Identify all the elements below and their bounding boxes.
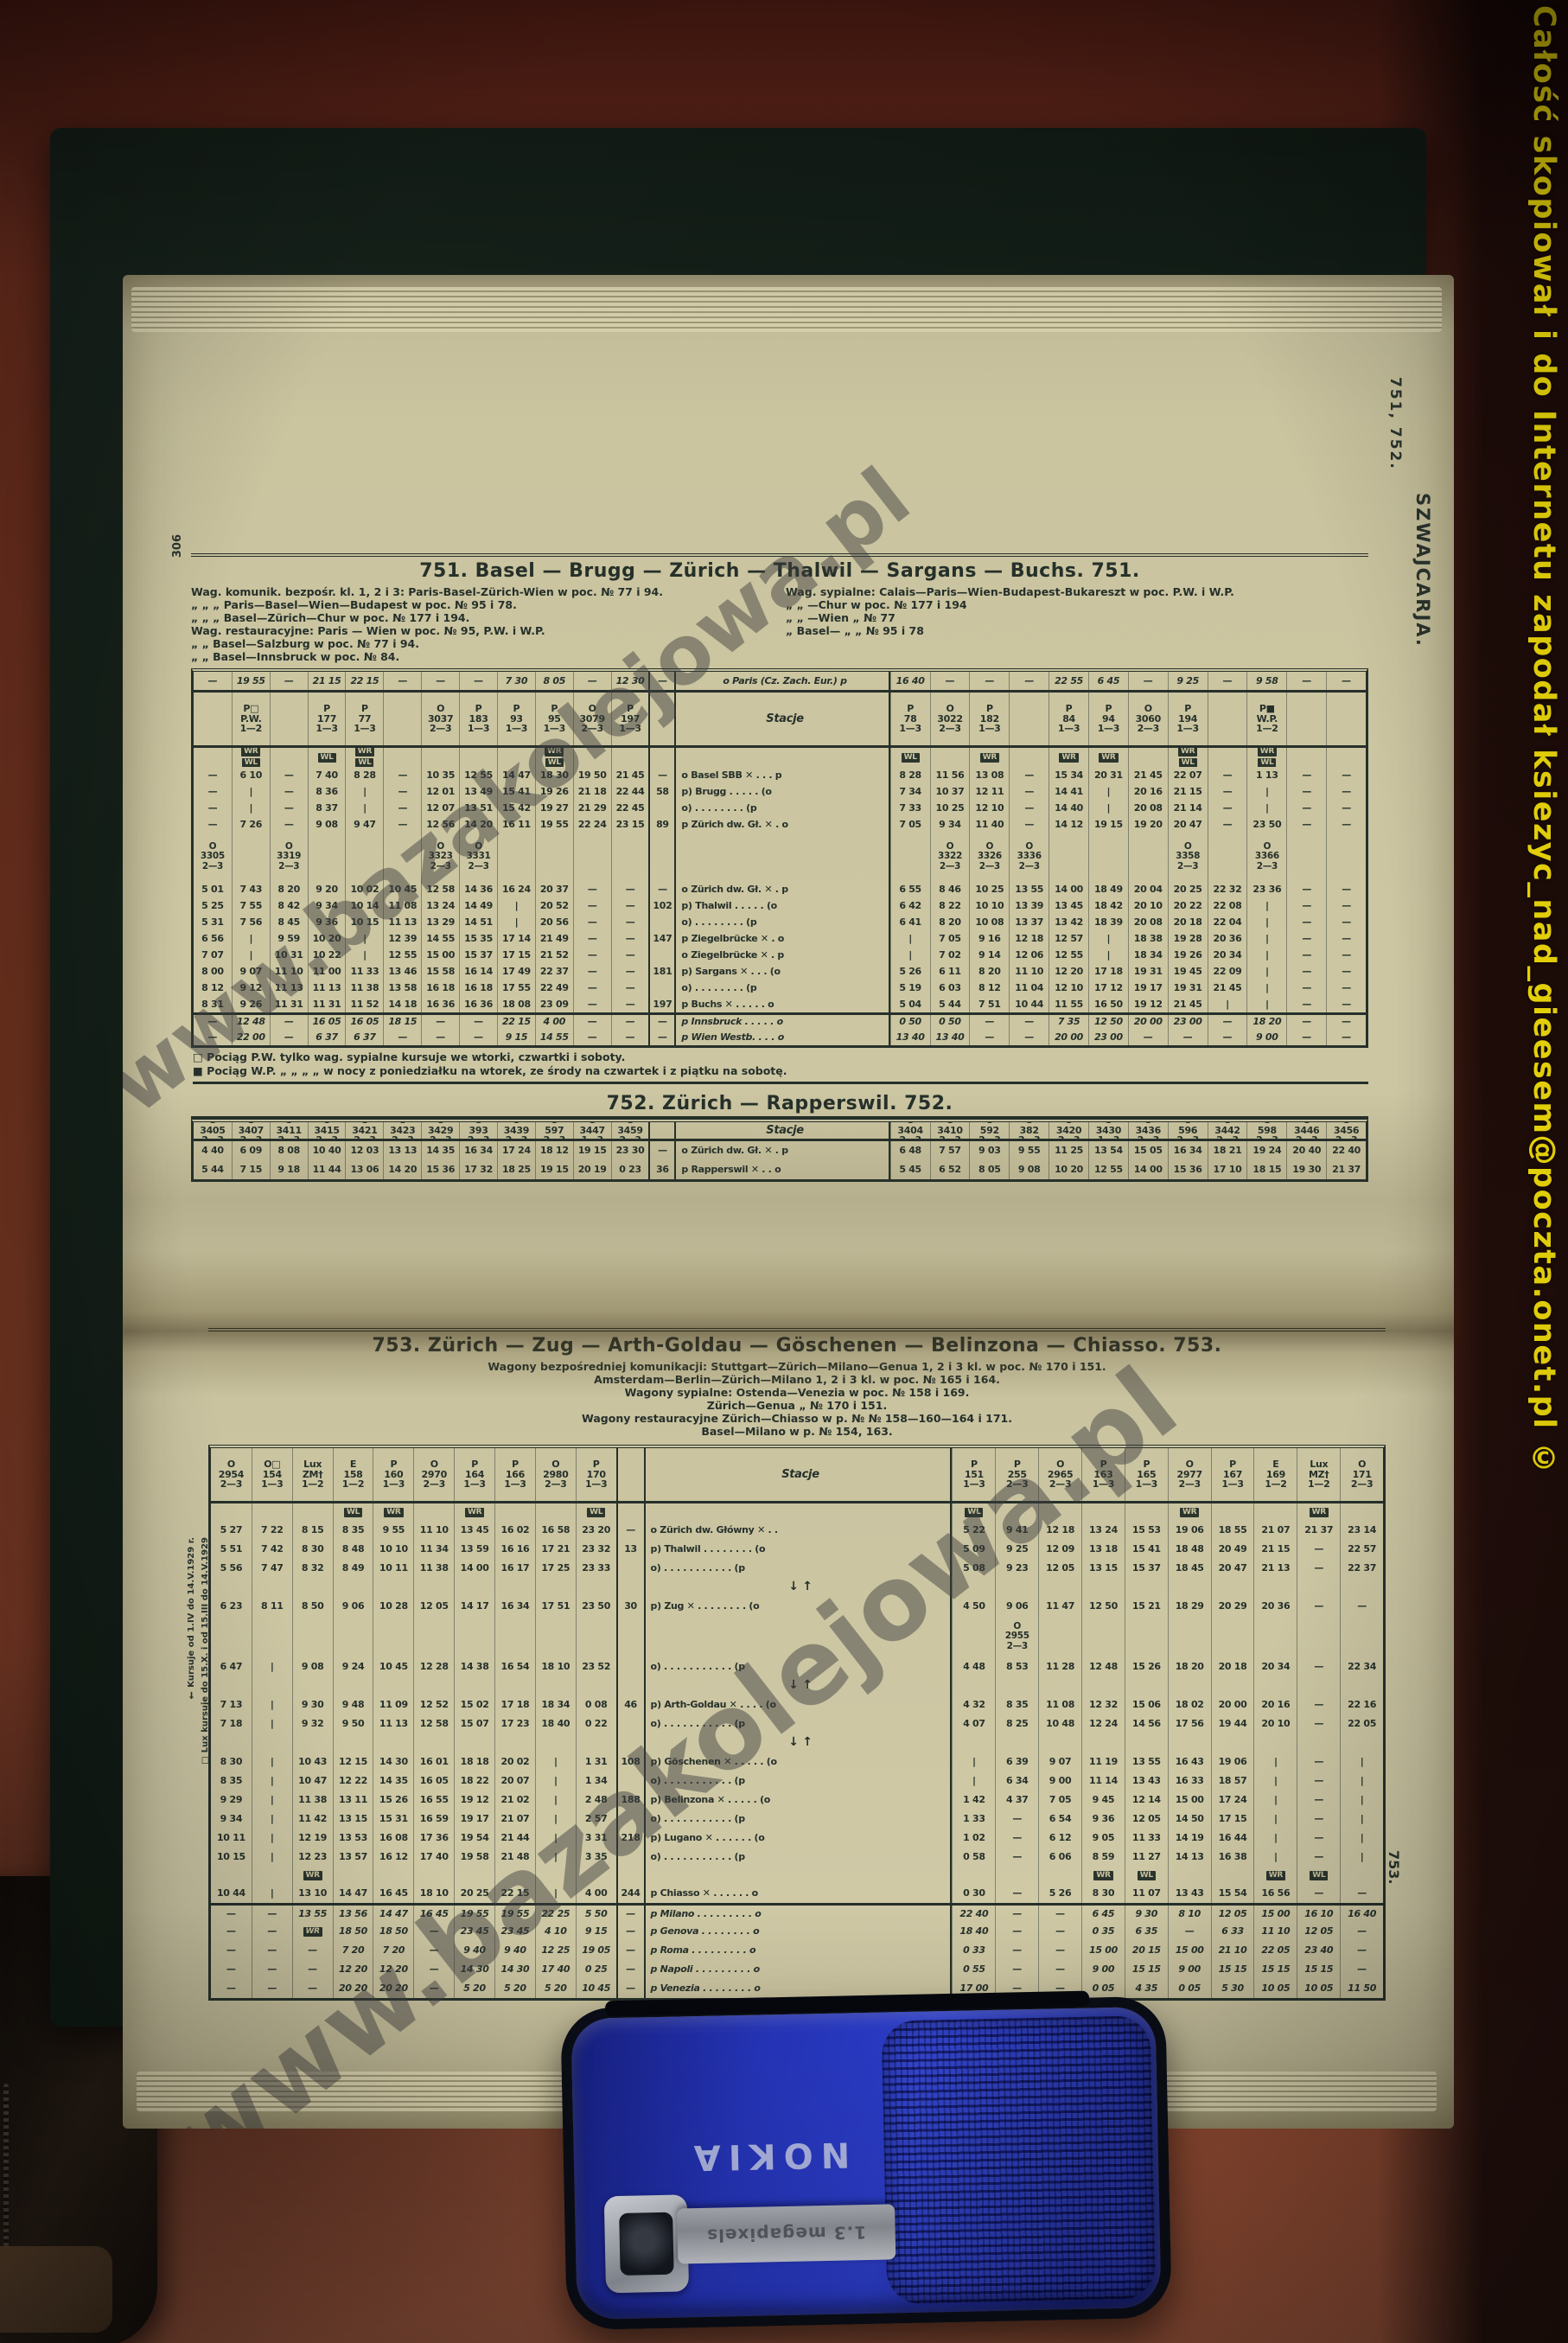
time-cell: [1286, 748, 1326, 767]
station-cell: p Napoli . . . . . . . . . o: [644, 1960, 953, 1979]
time-cell: 22 40: [1326, 1141, 1366, 1160]
time-cell: 23 00: [1168, 1015, 1208, 1029]
table-row: 8 129 1211 1311 1311 3813 5816 1816 1817…: [194, 980, 1366, 996]
time-cell: 21 45: [1208, 980, 1247, 996]
left-vertical-note-1: † Kursuje od 1.IV do 14.V.1929 r.: [187, 1537, 196, 1700]
time-cell: —: [1326, 767, 1366, 783]
nokia-logo: NOKIA: [685, 2134, 850, 2177]
time-cell: —: [270, 767, 308, 783]
time-cell: 12 19: [292, 1829, 333, 1848]
time-cell: 13 18: [1081, 1540, 1125, 1559]
time-cell: —: [194, 800, 232, 816]
km-cell: —: [616, 1941, 644, 1960]
time-cell: 1 02: [952, 1829, 995, 1848]
time-cell: 9 08: [292, 1657, 333, 1676]
table-row: O34052—3O34072—3O34112—3O34152—3O34212—3…: [194, 1122, 1366, 1141]
time-cell: 11 13: [373, 1714, 413, 1733]
time-cell: 19 55: [494, 1906, 535, 1922]
time-cell: 10 08: [969, 914, 1009, 930]
time-cell: 23 15: [611, 816, 649, 833]
time-cell: 21 14: [1168, 800, 1208, 816]
time-cell: 18 49: [1088, 881, 1128, 897]
time-cell: 1 42: [952, 1791, 995, 1810]
station-cell: o) . . . . . . . . . . . (p: [644, 1848, 953, 1867]
note-line: Wagony restauracyjne Zürich—Chiasso w p.…: [208, 1412, 1386, 1425]
time-cell: 4 10: [535, 1922, 576, 1941]
time-cell: 16 50: [1088, 996, 1128, 1012]
time-cell: 6 06: [1038, 1848, 1081, 1867]
station-cell: p) Belinzona ✕ . . . . . (o: [644, 1791, 953, 1810]
time-cell: [373, 1616, 413, 1657]
station-cell: [674, 833, 889, 881]
time-cell: 21 45: [611, 767, 649, 783]
time-cell: —: [995, 1848, 1038, 1867]
time-cell: —: [930, 672, 970, 690]
km-cell: 147: [648, 930, 674, 947]
time-cell: |: [232, 783, 270, 800]
time-cell: [383, 833, 421, 881]
time-cell: 12 06: [1009, 947, 1049, 963]
station-cell: p) Brugg . . . . . (o: [674, 783, 889, 800]
time-cell: 19 17: [1128, 980, 1168, 996]
time-cell: —: [1326, 1029, 1366, 1045]
time-cell: 22 05: [1253, 1941, 1297, 1960]
time-cell: 4 07: [952, 1714, 995, 1733]
note-line: Zürich—Genua „ № 170 i 151.: [208, 1399, 1386, 1412]
time-cell: 15 07: [454, 1714, 494, 1733]
time-cell: [211, 1578, 252, 1597]
timetable-grid-753: O29542—3O□1541—3LuxZM†1—2E1581—2P1601—3O…: [208, 1445, 1386, 2001]
time-cell: [995, 1676, 1038, 1695]
table-751-title: 751. Basel — Brugg — Zürich — Thalwil — …: [191, 553, 1368, 582]
time-cell: |: [535, 1848, 576, 1867]
time-cell: 17 36: [413, 1829, 454, 1848]
station-cell: o Ziegelbrücke ✕ . p: [674, 947, 889, 963]
time-cell: LuxZM†1—2: [292, 1448, 333, 1501]
time-cell: 16 44: [1211, 1829, 1254, 1848]
wagon-badge: WR: [1180, 1508, 1199, 1517]
time-cell: 15 37: [459, 947, 497, 963]
station-cell: o Zürich dw. Gł. ✕ . p: [674, 1141, 889, 1160]
time-cell: |: [1253, 1810, 1297, 1829]
station-cell: p) Arth-Goldau ✕ . . . . (o: [644, 1695, 953, 1714]
time-cell: 8 46: [930, 881, 970, 897]
time-cell: 6 37: [308, 1029, 346, 1045]
time-cell: 7 51: [969, 996, 1009, 1012]
camera-lens-icon: [619, 2212, 673, 2276]
time-cell: 20 07: [494, 1772, 535, 1791]
table-row: 8 30|10 4312 1514 3016 0118 1820 02|1 31…: [211, 1752, 1383, 1772]
station-cell: p Milano . . . . . . . . . o: [644, 1906, 953, 1922]
time-cell: WR: [1168, 1503, 1211, 1521]
time-cell: 9 26: [232, 996, 270, 1012]
time-cell: 13 39: [1009, 897, 1049, 914]
time-cell: 11 31: [270, 996, 308, 1012]
time-cell: 10 40: [308, 1141, 346, 1160]
time-cell: 4 50: [952, 1597, 995, 1616]
time-cell: 10 37: [930, 783, 970, 800]
time-cell: [232, 833, 270, 881]
time-cell: O5922—3: [969, 1122, 1009, 1139]
table-row: 9 34|11 4213 1515 3116 5919 1721 07|2 57…: [211, 1810, 1383, 1829]
time-cell: 12 28: [413, 1657, 454, 1676]
time-cell: 9 00: [1246, 1029, 1286, 1045]
time-cell: 10 20: [1049, 1160, 1088, 1179]
time-cell: [497, 748, 535, 767]
copyright-vertical-text: Całość skopiował i do Internetu zapodał …: [1527, 5, 1561, 1570]
time-cell: 19 15: [535, 1160, 573, 1179]
time-cell: —: [1297, 1597, 1340, 1616]
time-cell: 13 40: [930, 1029, 970, 1045]
table-row: 7 18|9 329 5011 1312 5815 0717 2318 400 …: [211, 1714, 1383, 1733]
time-cell: —: [459, 1029, 497, 1045]
time-cell: WRWL: [1246, 748, 1286, 767]
time-cell: 11 38: [345, 980, 383, 996]
time-cell: [333, 1616, 373, 1657]
time-cell: —: [413, 1960, 454, 1979]
time-cell: 18 15: [1246, 1160, 1286, 1179]
time-cell: —: [573, 963, 611, 980]
time-cell: 7 05: [890, 816, 930, 833]
time-cell: 12 57: [1049, 930, 1088, 947]
time-cell: [1128, 833, 1168, 881]
time-cell: |: [252, 1848, 292, 1867]
time-cell: 7 34: [890, 783, 930, 800]
time-cell: 12 23: [292, 1848, 333, 1867]
wagon-badge: WR: [465, 1508, 484, 1517]
time-cell: 12 55: [1049, 947, 1088, 963]
wagon-badge: WR: [384, 1508, 403, 1517]
time-cell: 16 34: [1168, 1141, 1208, 1160]
time-cell: |: [1088, 783, 1128, 800]
time-cell: |: [345, 947, 383, 963]
time-cell: 20 25: [1168, 881, 1208, 897]
time-cell: 10 47: [292, 1772, 333, 1791]
time-cell: 20 31: [1088, 767, 1128, 783]
time-cell: 6 12: [1038, 1829, 1081, 1848]
wagon-badge: WL: [1258, 758, 1276, 767]
time-cell: [952, 1676, 995, 1695]
time-cell: [345, 833, 383, 881]
time-cell: 9 45: [1081, 1791, 1125, 1810]
time-cell: [292, 1616, 333, 1657]
time-cell: 14 00: [1049, 881, 1088, 897]
time-cell: [1038, 1616, 1081, 1657]
time-cell: 9 00: [1168, 1960, 1211, 1979]
time-cell: [494, 1503, 535, 1521]
time-cell: [1038, 1503, 1081, 1521]
time-cell: —: [1038, 1906, 1081, 1922]
time-cell: 9 16: [969, 930, 1009, 947]
time-cell: 7 20: [333, 1941, 373, 1960]
time-cell: [1081, 1733, 1125, 1752]
time-cell: —: [1297, 1540, 1340, 1559]
time-cell: 18 02: [1168, 1695, 1211, 1714]
time-cell: 13 49: [459, 783, 497, 800]
station-cell: p Innsbruck . . . . . o: [674, 1015, 889, 1029]
time-cell: [576, 1676, 616, 1695]
time-cell: P1971—3: [611, 693, 649, 745]
time-cell: [413, 1867, 454, 1884]
time-cell: 6 34: [995, 1772, 1038, 1791]
time-cell: 12 22: [333, 1772, 373, 1791]
time-cell: 5 44: [930, 996, 970, 1012]
time-cell: 12 20: [1049, 963, 1088, 980]
time-cell: —: [1168, 1922, 1211, 1941]
time-cell: [1125, 1616, 1168, 1657]
time-cell: 18 22: [454, 1772, 494, 1791]
wagon-badge: WL: [902, 753, 920, 763]
time-cell: 16 05: [308, 1015, 346, 1029]
time-cell: 9 15: [576, 1922, 616, 1941]
time-cell: 17 55: [497, 980, 535, 996]
time-cell: WL: [890, 748, 930, 767]
time-cell: [1211, 1676, 1254, 1695]
time-cell: 8 42: [270, 897, 308, 914]
table-row: O33052—3O33192—3O33232—3O33312—3O33222—3…: [194, 833, 1366, 881]
time-cell: 23 30: [611, 1141, 649, 1160]
time-cell: —: [1297, 1559, 1340, 1578]
time-cell: WR: [969, 748, 1009, 767]
time-cell: 6 10: [232, 767, 270, 783]
time-cell: |: [232, 800, 270, 816]
time-cell: 16 56: [1253, 1884, 1297, 1903]
time-cell: 16 34: [459, 1141, 497, 1160]
time-cell: [535, 1867, 576, 1884]
wagon-badge: WR: [1099, 753, 1118, 763]
photo-scene: Całość skopiował i do Internetu zapodał …: [0, 0, 1568, 2343]
time-cell: 2 57: [576, 1810, 616, 1829]
station-cell: o) . . . . . . . . . . . (p: [644, 1657, 953, 1676]
time-cell: 23 45: [494, 1922, 535, 1941]
table-row: —6 10—7 408 28—10 3512 5514 4718 3019 50…: [194, 767, 1366, 783]
time-cell: 21 29: [573, 800, 611, 816]
time-cell: 7 18: [211, 1714, 252, 1733]
time-cell: O34152—3: [308, 1122, 346, 1139]
time-cell: 14 12: [1049, 816, 1088, 833]
km-cell: [648, 800, 674, 816]
time-cell: 15 05: [1128, 1141, 1168, 1160]
time-cell: —: [573, 996, 611, 1012]
time-cell: [1340, 1578, 1383, 1597]
time-cell: 15 37: [1125, 1559, 1168, 1578]
time-cell: E1691—2: [1253, 1448, 1297, 1501]
time-cell: 13 11: [333, 1791, 373, 1810]
note-line: „ „ Basel—Salzburg w poc. № 77 i 94.: [191, 637, 774, 650]
time-cell: 21 49: [535, 930, 573, 947]
time-cell: [1253, 1503, 1297, 1521]
time-cell: [576, 1616, 616, 1657]
time-cell: [459, 748, 497, 767]
time-cell: 9 58: [1246, 672, 1286, 690]
time-cell: [1038, 1578, 1081, 1597]
time-cell: 15 00: [421, 947, 459, 963]
time-cell: —: [1326, 816, 1366, 833]
km-cell: [616, 1733, 644, 1752]
station-cell: o Zürich dw. Główny ✕ . .: [644, 1521, 953, 1540]
time-cell: —: [573, 914, 611, 930]
time-cell: 17 10: [1208, 1160, 1247, 1179]
time-cell: 18 30: [535, 767, 573, 783]
time-cell: 16 55: [413, 1791, 454, 1810]
time-cell: 11 10: [270, 963, 308, 980]
time-cell: O5962—3: [1168, 1122, 1208, 1139]
km-cell: 197: [648, 996, 674, 1012]
station-cell: p Zürich dw. Gł. ✕ . o: [674, 816, 889, 833]
time-cell: |: [252, 1772, 292, 1791]
time-cell: 8 32: [292, 1559, 333, 1578]
station-cell: [644, 1867, 953, 1884]
km-cell: [648, 914, 674, 930]
time-cell: |: [345, 783, 383, 800]
time-cell: [252, 1616, 292, 1657]
table-row: O29542—3O□1541—3LuxZM†1—2E1581—2P1601—3O…: [211, 1448, 1383, 1503]
km-cell: —: [648, 881, 674, 897]
time-cell: [1168, 1578, 1211, 1597]
time-cell: [373, 1578, 413, 1597]
time-cell: [1326, 833, 1366, 881]
station-cell: [674, 748, 889, 767]
km-cell: —: [648, 1015, 674, 1029]
time-cell: 16 16: [494, 1540, 535, 1559]
time-cell: 11 40: [969, 816, 1009, 833]
time-cell: 20 18: [1211, 1657, 1254, 1676]
time-cell: |: [497, 914, 535, 930]
time-cell: —: [573, 980, 611, 996]
time-cell: 12 10: [969, 800, 1009, 816]
time-cell: 18 29: [1168, 1597, 1211, 1616]
time-cell: —: [1297, 1657, 1340, 1676]
time-cell: 16 45: [373, 1884, 413, 1903]
note-line: „ Basel— „ „ № 95 i 78: [786, 624, 1368, 637]
wagon-badge: WR: [545, 748, 564, 757]
time-cell: 10 11: [373, 1559, 413, 1578]
time-cell: 19 24: [1246, 1141, 1286, 1160]
time-cell: WR: [373, 1503, 413, 1521]
time-cell: 13 58: [383, 980, 421, 996]
time-cell: 8 30: [211, 1752, 252, 1772]
time-cell: 23 50: [576, 1597, 616, 1616]
time-cell: 16 18: [459, 980, 497, 996]
time-cell: 20 37: [535, 881, 573, 897]
time-cell: |: [232, 947, 270, 963]
time-cell: —: [383, 800, 421, 816]
table-row: 10 15|12 2313 5716 1217 4019 5821 48|3 3…: [211, 1848, 1383, 1867]
time-cell: [1297, 1578, 1340, 1597]
time-cell: —: [1297, 1791, 1340, 1810]
time-cell: P941—3: [1088, 693, 1128, 745]
time-cell: 14 47: [497, 767, 535, 783]
time-cell: —: [573, 672, 611, 690]
time-cell: —: [1128, 672, 1168, 690]
time-cell: 19 30: [1286, 1160, 1326, 1179]
notes-left-column: Wag. komunik. bezpośr. kl. 1, 2 i 3: Par…: [191, 585, 774, 663]
time-cell: 23 09: [535, 996, 573, 1012]
time-cell: [952, 1867, 995, 1884]
time-cell: 21 07: [1253, 1521, 1297, 1540]
table-row: ———7 207 20—9 409 4012 2519 05—p Roma . …: [211, 1941, 1383, 1960]
time-cell: |: [345, 930, 383, 947]
time-cell: 15 21: [1125, 1597, 1168, 1616]
time-cell: 22 08: [1208, 897, 1247, 914]
timetable-grid-751: —19 55—21 1522 15———7 308 05—12 30—o Par…: [191, 668, 1368, 1048]
phone-speaker-grille: [882, 2015, 1157, 2304]
time-cell: —: [292, 1960, 333, 1979]
time-cell: [1125, 1503, 1168, 1521]
time-cell: |: [1246, 947, 1286, 963]
time-cell: |: [1253, 1772, 1297, 1791]
time-cell: 17 12: [1088, 980, 1128, 996]
station-cell: p) Göschenen ✕ . . . . . (o: [644, 1752, 953, 1772]
time-cell: 12 01: [421, 783, 459, 800]
time-cell: 15 58: [421, 963, 459, 980]
time-cell: O33232—3: [421, 833, 459, 881]
time-cell: 23 52: [576, 1657, 616, 1676]
table-row: 5 277 228 158 359 5511 1013 4516 0216 58…: [211, 1521, 1383, 1540]
time-cell: 12 52: [413, 1695, 454, 1714]
time-cell: 13 55: [292, 1906, 333, 1922]
time-cell: 9 36: [1081, 1810, 1125, 1829]
time-cell: 8 48: [333, 1540, 373, 1559]
time-cell: 21 37: [1326, 1160, 1366, 1179]
time-cell: [308, 833, 346, 881]
time-cell: WR: [1297, 1503, 1340, 1521]
time-cell: 4 32: [952, 1695, 995, 1714]
time-cell: [494, 1676, 535, 1695]
note-line: „ „ „ Paris—Basel—Wien—Budapest w poc. №…: [191, 598, 774, 611]
time-cell: —: [1340, 1884, 1383, 1903]
time-cell: |: [1246, 963, 1286, 980]
time-cell: —: [611, 897, 649, 914]
time-cell: —: [1208, 672, 1247, 690]
time-cell: 5 30: [1211, 1979, 1254, 1998]
time-cell: |: [1253, 1829, 1297, 1848]
time-cell: [454, 1578, 494, 1597]
time-cell: 8 35: [995, 1695, 1038, 1714]
time-cell: 0 50: [930, 1015, 970, 1029]
time-cell: O33192—3: [270, 833, 308, 881]
station-cell: o) . . . . . . . . (p: [674, 800, 889, 816]
time-cell: 18 48: [1168, 1540, 1211, 1559]
time-cell: 15 15: [1211, 1960, 1254, 1979]
time-cell: —: [1326, 980, 1366, 996]
time-cell: 19 31: [1168, 980, 1208, 996]
time-cell: 11 00: [308, 963, 346, 980]
time-cell: 16 17: [494, 1559, 535, 1578]
time-cell: —: [1009, 1029, 1049, 1045]
km-cell: —: [648, 672, 674, 690]
time-cell: 19 12: [1128, 996, 1168, 1012]
time-cell: [1340, 1733, 1383, 1752]
time-cell: 9 30: [1125, 1906, 1168, 1922]
time-cell: 2 48: [576, 1791, 616, 1810]
time-cell: —: [252, 1941, 292, 1960]
time-cell: —: [611, 947, 649, 963]
time-cell: 8 35: [333, 1521, 373, 1540]
time-cell: 9 08: [308, 816, 346, 833]
time-cell: 11 19: [1081, 1752, 1125, 1772]
note-line: „ „ —Chur w poc. № 177 i 194: [786, 598, 1368, 611]
time-cell: 18 39: [1088, 914, 1128, 930]
time-cell: [252, 1867, 292, 1884]
time-cell: —: [1326, 947, 1366, 963]
time-cell: O34052—3: [194, 1122, 232, 1139]
time-cell: 19 15: [1088, 816, 1128, 833]
time-cell: 17 51: [535, 1597, 576, 1616]
time-cell: —: [194, 1015, 232, 1029]
time-cell: 19 45: [1168, 963, 1208, 980]
time-cell: 20 47: [1211, 1559, 1254, 1578]
